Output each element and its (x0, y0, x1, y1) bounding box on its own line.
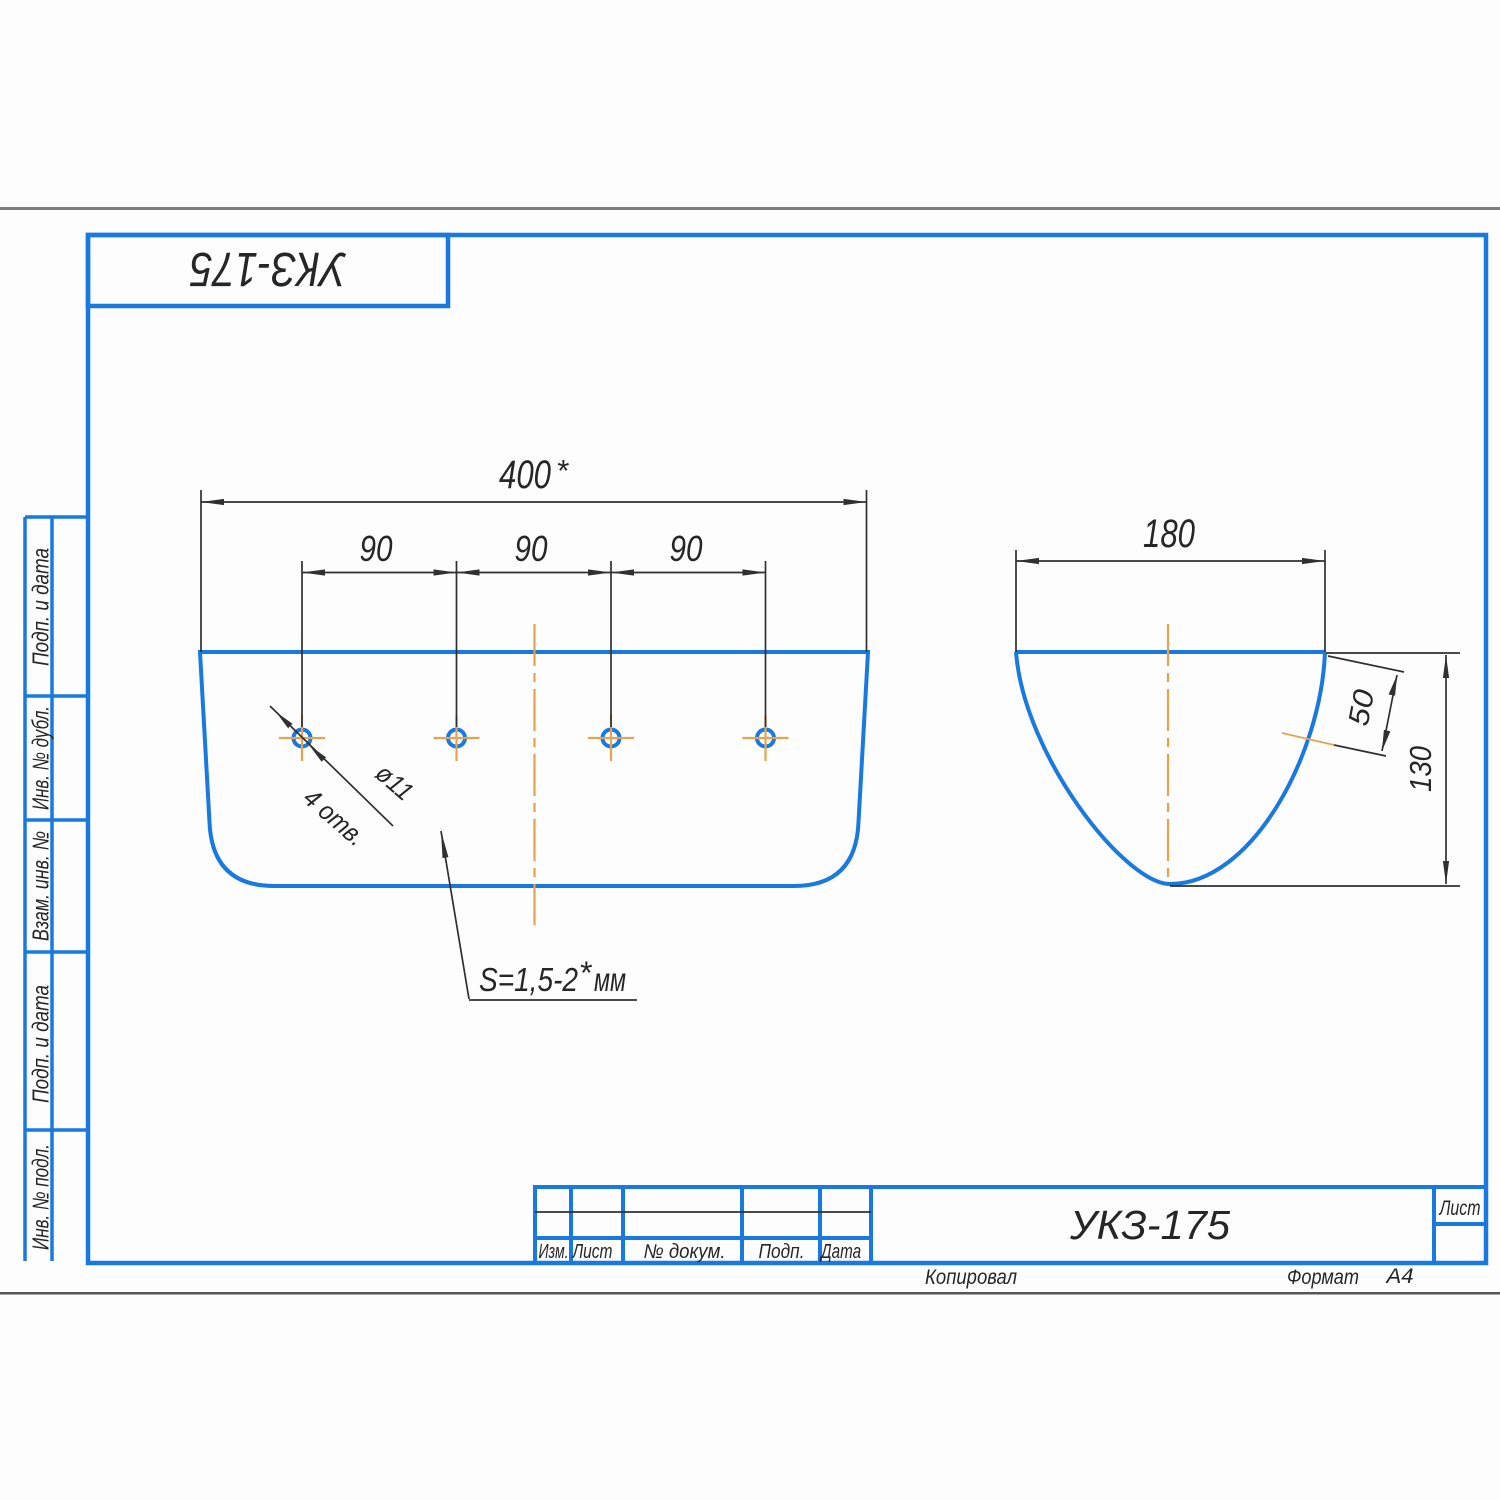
svg-text:Формат: Формат (1287, 1266, 1359, 1289)
svg-text:Лист: Лист (1438, 1197, 1481, 1220)
svg-text:130: 130 (1403, 746, 1438, 792)
svg-text:Подп.: Подп. (759, 1241, 805, 1263)
svg-text:50: 50 (1343, 687, 1381, 728)
svg-text:Изм.: Изм. (539, 1241, 569, 1263)
svg-text:S=1,5-2: S=1,5-2 (479, 961, 578, 998)
svg-text:400: 400 (499, 453, 551, 497)
svg-text:Копировал: Копировал (925, 1266, 1017, 1289)
svg-text:мм: мм (594, 961, 626, 998)
svg-text:№ докум.: № докум. (644, 1241, 726, 1263)
svg-text:УКЗ-175: УКЗ-175 (190, 242, 347, 295)
svg-text:Взам. инв. №: Взам. инв. № (28, 831, 54, 941)
svg-text:Инв. № подл.: Инв. № подл. (28, 1144, 54, 1250)
svg-text:*: * (556, 453, 569, 488)
svg-text:А4: А4 (1384, 1265, 1413, 1288)
svg-text:Дата: Дата (819, 1241, 861, 1263)
svg-text:90: 90 (360, 528, 393, 569)
svg-text:90: 90 (670, 528, 703, 569)
svg-text:90: 90 (515, 528, 548, 569)
svg-text:Лист: Лист (571, 1241, 613, 1263)
svg-text:Подп. и дата: Подп. и дата (28, 548, 54, 666)
svg-text:УКЗ-175: УКЗ-175 (1069, 1202, 1230, 1248)
svg-text:Подп. и дата: Подп. и дата (28, 985, 54, 1103)
svg-text:Инв. № дубл.: Инв. № дубл. (28, 706, 54, 810)
svg-text:*: * (579, 955, 593, 991)
svg-text:180: 180 (1143, 512, 1195, 556)
